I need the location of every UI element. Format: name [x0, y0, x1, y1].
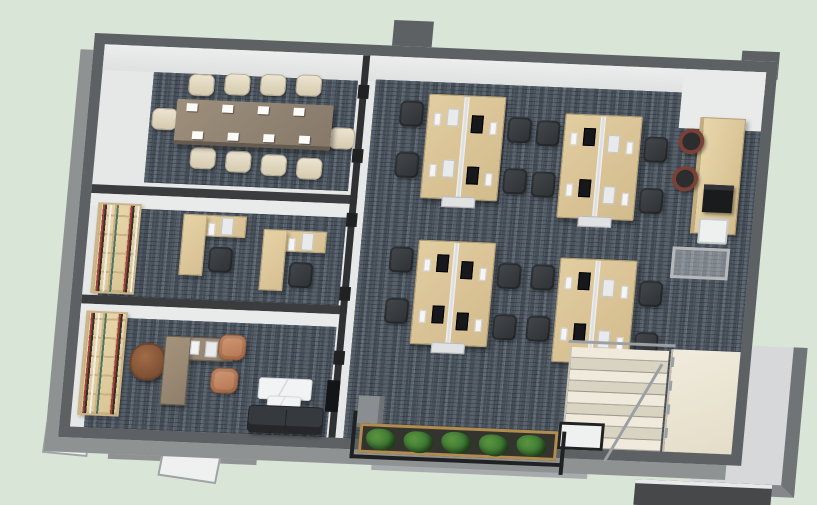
- workstation-cluster: [420, 94, 507, 202]
- keyboard: [479, 268, 487, 281]
- task-chair: [506, 117, 532, 144]
- notepad: [263, 134, 275, 142]
- room-conference: [92, 44, 364, 195]
- notepad: [186, 103, 198, 111]
- monitor: [436, 254, 450, 272]
- notepad: [299, 136, 311, 144]
- task-chair: [207, 247, 233, 274]
- conference-chair: [260, 154, 288, 177]
- keyboard: [560, 328, 568, 341]
- facade-glass-panel: [157, 442, 222, 484]
- conference-chair: [259, 74, 287, 97]
- console-table: [670, 246, 730, 280]
- guest-chair: [209, 367, 239, 394]
- keyboard: [208, 223, 216, 236]
- notepad: [192, 131, 204, 139]
- keyboard: [433, 113, 441, 126]
- keyboard: [489, 122, 497, 135]
- keyboard: [626, 142, 634, 155]
- notepad: [258, 106, 270, 114]
- conference-chair: [224, 73, 252, 96]
- keyboard: [418, 310, 426, 323]
- task-chair: [394, 152, 420, 179]
- monitor: [431, 305, 445, 323]
- coffee-machine: [702, 184, 734, 213]
- appliance: [697, 218, 729, 245]
- monitor: [573, 323, 587, 341]
- room-executive-office: [70, 303, 341, 437]
- sofa-cushion-split: [284, 410, 287, 431]
- monitor: [455, 312, 469, 330]
- keyboard: [423, 259, 431, 272]
- task-chair: [491, 314, 517, 341]
- shrub: [515, 435, 547, 458]
- monitor: [301, 233, 315, 251]
- notepad: [222, 105, 234, 113]
- task-chair: [502, 168, 528, 195]
- building-walls: [58, 33, 778, 466]
- task-chair: [384, 297, 410, 324]
- task-chair: [496, 263, 522, 290]
- keyboard: [570, 132, 578, 145]
- task-chair: [525, 315, 551, 342]
- keyboard: [620, 286, 628, 299]
- keyboard: [565, 276, 573, 289]
- keyboard: [474, 319, 482, 332]
- monitor: [205, 341, 218, 357]
- task-chair: [638, 281, 664, 308]
- building-render: [58, 33, 778, 466]
- office-floorplan-scene: [0, 0, 817, 505]
- room-open-office: [335, 56, 766, 455]
- keyboard: [621, 193, 629, 206]
- conference-table: [173, 99, 334, 151]
- workstation-cluster: [556, 113, 643, 221]
- monitor: [221, 217, 235, 235]
- task-chair: [530, 171, 556, 198]
- monitor: [583, 128, 597, 146]
- keyboard: [288, 238, 296, 251]
- conference-chair: [189, 147, 217, 170]
- conference-chair: [295, 157, 323, 180]
- conference-chair: [224, 150, 252, 173]
- monitor: [460, 261, 474, 279]
- monitor: [577, 272, 591, 290]
- under-desk-cabinet: [441, 196, 476, 208]
- shrub: [365, 428, 397, 451]
- shrub: [478, 434, 510, 457]
- notepad: [293, 108, 305, 116]
- room-shared-office: [82, 193, 351, 305]
- notepad: [227, 133, 239, 141]
- desktop-computer: [190, 341, 200, 355]
- task-chair: [638, 188, 664, 215]
- guest-chair: [217, 334, 247, 361]
- monitor: [597, 330, 611, 348]
- task-chair: [535, 120, 561, 147]
- shrub: [403, 431, 435, 454]
- monitor: [578, 179, 592, 197]
- under-desk-cabinet: [577, 216, 612, 228]
- monitor: [446, 108, 460, 126]
- conference-chair: [295, 74, 323, 97]
- sofa: [246, 404, 324, 435]
- monitor: [470, 115, 484, 133]
- monitor: [607, 135, 621, 153]
- keyboard: [429, 164, 437, 177]
- monitor: [442, 160, 456, 178]
- workstation-cluster: [409, 240, 496, 348]
- task-chair: [643, 136, 669, 163]
- conference-chair: [188, 74, 216, 97]
- monitor: [602, 279, 616, 297]
- task-chair: [399, 100, 425, 127]
- monitor: [466, 166, 480, 184]
- bookshelf: [90, 202, 142, 294]
- task-chair: [388, 246, 414, 273]
- monitor: [602, 186, 616, 204]
- task-chair: [287, 262, 313, 289]
- keyboard: [565, 184, 573, 197]
- under-desk-cabinet: [431, 342, 466, 354]
- keyboard: [485, 173, 493, 186]
- shrub: [440, 431, 472, 454]
- conference-chair: [328, 127, 356, 150]
- task-chair: [530, 264, 556, 291]
